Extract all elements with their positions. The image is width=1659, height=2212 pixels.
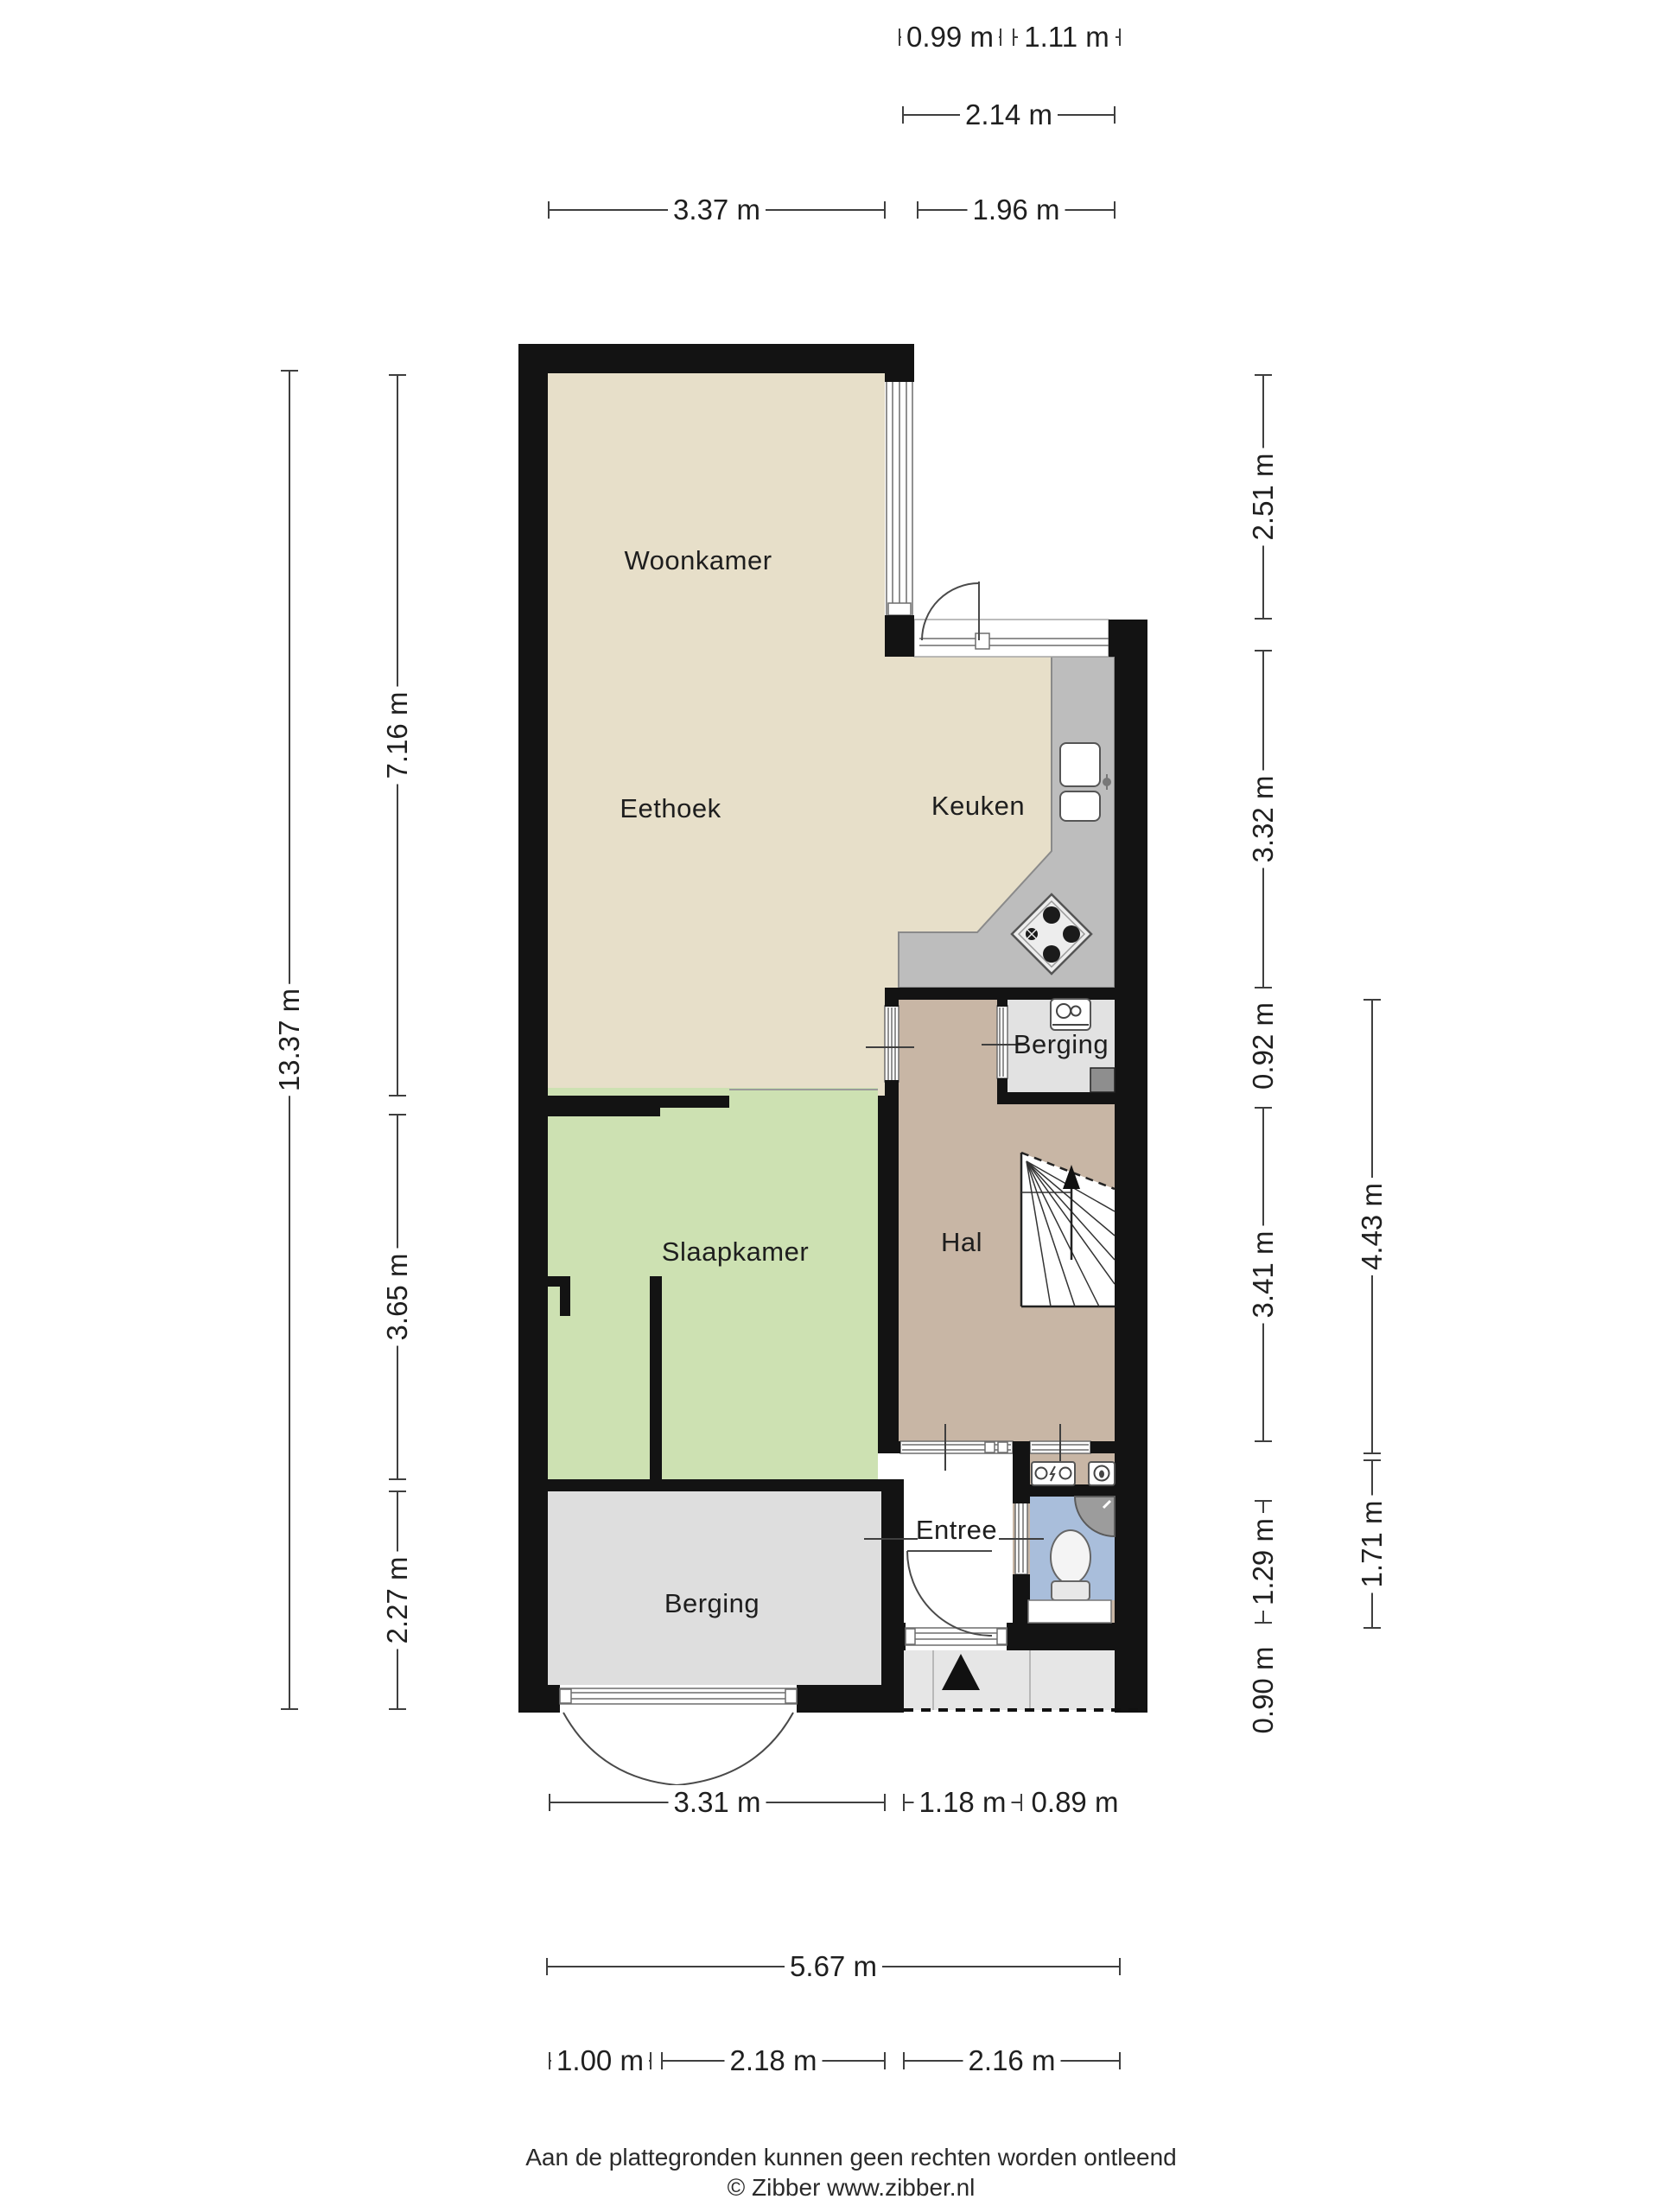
dimension: 0.89 m bbox=[1027, 1785, 1124, 1820]
dimension-label: 3.31 m bbox=[674, 1786, 761, 1818]
water-meter-icon bbox=[1089, 1462, 1115, 1485]
dimension-label: 0.89 m bbox=[1032, 1786, 1119, 1818]
window-hal-entree-icon bbox=[900, 1441, 1090, 1453]
footer: Aan de plattegronden kunnen geen rechten… bbox=[525, 2144, 1176, 2201]
dimension-label: 0.90 m bbox=[1247, 1647, 1279, 1734]
dimension: 3.37 m bbox=[549, 193, 885, 227]
dimension-label: 2.16 m bbox=[969, 2044, 1056, 2076]
dimension-label: 3.65 m bbox=[381, 1254, 413, 1341]
window-eethoek-hal-icon bbox=[885, 1006, 899, 1082]
dimension: 1.18 m bbox=[904, 1785, 1021, 1820]
dimension-label: 1.96 m bbox=[973, 194, 1060, 226]
dimension: 1.71 m bbox=[1355, 1460, 1389, 1628]
window-woonkamer-icon bbox=[887, 377, 912, 617]
room-slaapkamer-floor bbox=[548, 1088, 878, 1479]
dimension-label: 0.92 m bbox=[1247, 1002, 1279, 1090]
dimension-label: 1.29 m bbox=[1247, 1518, 1279, 1605]
boiler-icon bbox=[1051, 999, 1090, 1030]
dimension-label: 1.18 m bbox=[919, 1786, 1007, 1818]
dimension: 1.29 m bbox=[1246, 1501, 1281, 1623]
dimension: 13.37 m bbox=[272, 371, 307, 1709]
dimension-label: 7.16 m bbox=[381, 692, 413, 779]
dimension-label: 2.51 m bbox=[1247, 454, 1279, 541]
dimension: 2.18 m bbox=[662, 2044, 885, 2078]
floorplan-canvas: Woonkamer Eethoek Keuken Berging Hal Sla… bbox=[0, 0, 1659, 2212]
dimension: 2.27 m bbox=[380, 1491, 415, 1709]
toilet-icon bbox=[1051, 1530, 1090, 1600]
dimension: 2.51 m bbox=[1246, 375, 1281, 619]
room-label-keuken: Keuken bbox=[931, 791, 1025, 821]
shaft bbox=[1090, 1068, 1115, 1092]
dimension: 4.43 m bbox=[1355, 1000, 1389, 1453]
electric-meter-icon bbox=[1032, 1462, 1075, 1485]
dimension-label: 0.99 m bbox=[906, 21, 994, 53]
dimension: 1.00 m bbox=[550, 2044, 651, 2078]
toilet-threshold bbox=[1028, 1600, 1111, 1623]
footer-copyright: © Zibber www.zibber.nl bbox=[728, 2174, 976, 2201]
dimension: 3.32 m bbox=[1246, 651, 1281, 988]
dimension: 3.31 m bbox=[550, 1785, 885, 1820]
floorplan-page: Woonkamer Eethoek Keuken Berging Hal Sla… bbox=[0, 0, 1659, 2212]
dimension-label: 4.43 m bbox=[1356, 1183, 1388, 1270]
room-label-berging-klein: Berging bbox=[1014, 1029, 1109, 1059]
dimension-label: 2.27 m bbox=[381, 1557, 413, 1644]
room-label-slaapkamer: Slaapkamer bbox=[662, 1236, 809, 1267]
dimension: 2.14 m bbox=[903, 98, 1115, 132]
dimension-label: 2.18 m bbox=[730, 2044, 817, 2076]
porch-area bbox=[904, 1650, 1115, 1710]
window-hal-berging-icon bbox=[997, 1006, 1007, 1078]
dimension: 7.16 m bbox=[380, 375, 415, 1096]
dimension: 3.41 m bbox=[1246, 1108, 1281, 1441]
room-label-hal: Hal bbox=[941, 1227, 982, 1257]
footer-disclaimer: Aan de plattegronden kunnen geen rechten… bbox=[525, 2144, 1176, 2171]
dimension-label: 3.32 m bbox=[1247, 776, 1279, 863]
dimension-label: 3.41 m bbox=[1247, 1231, 1279, 1319]
dimension: 0.99 m bbox=[899, 20, 1001, 54]
dimension: 1.11 m bbox=[1014, 20, 1120, 54]
dimension: 0.92 m bbox=[1246, 997, 1281, 1095]
dimension: 3.65 m bbox=[380, 1115, 415, 1479]
dimension-label: 1.00 m bbox=[556, 2044, 644, 2076]
room-label-woonkamer: Woonkamer bbox=[624, 545, 772, 575]
dimension: 5.67 m bbox=[547, 1949, 1120, 1984]
dimension: 0.90 m bbox=[1246, 1642, 1281, 1739]
dimension-label: 2.14 m bbox=[965, 99, 1052, 130]
dimension-label: 1.71 m bbox=[1356, 1501, 1388, 1588]
dimension-label: 1.11 m bbox=[1024, 21, 1109, 53]
room-label-eethoek: Eethoek bbox=[620, 793, 721, 823]
dimension-label: 13.37 m bbox=[273, 988, 305, 1091]
room-label-berging-groot: Berging bbox=[664, 1588, 760, 1618]
room-label-entree: Entree bbox=[916, 1515, 997, 1545]
dimension-label: 5.67 m bbox=[790, 1950, 877, 1982]
dimension-label: 3.37 m bbox=[673, 194, 760, 226]
door-entree-front bbox=[906, 1551, 1007, 1645]
dimension: 1.96 m bbox=[918, 193, 1115, 227]
door-berging-double bbox=[560, 1688, 797, 1785]
dimension: 2.16 m bbox=[904, 2044, 1120, 2078]
